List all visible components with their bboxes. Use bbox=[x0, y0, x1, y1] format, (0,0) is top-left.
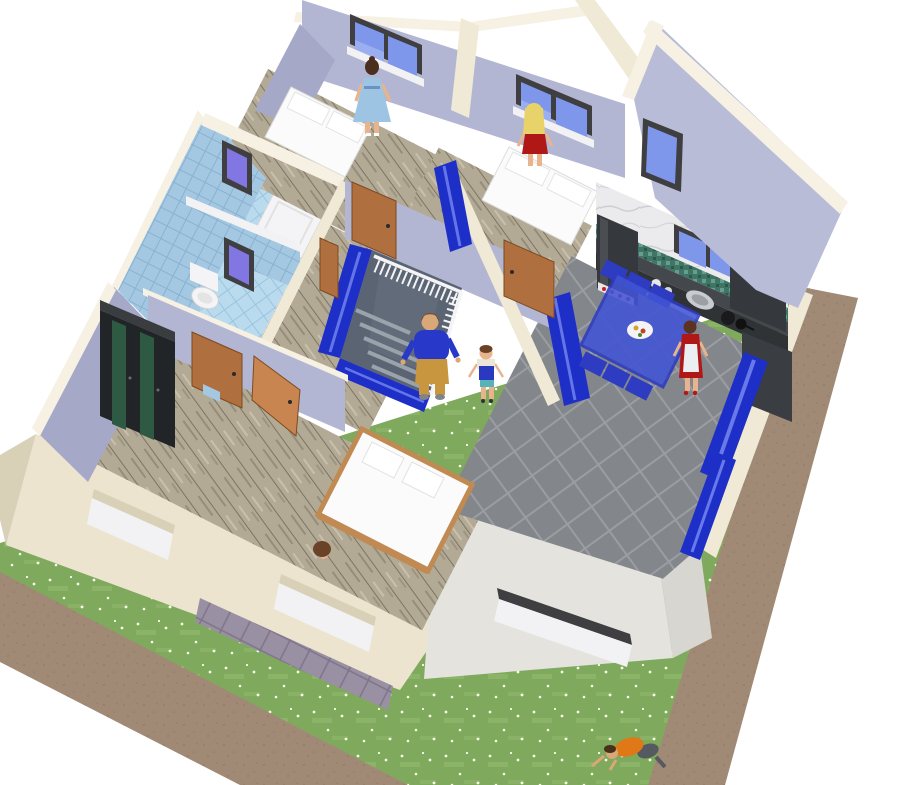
3d-view-stage bbox=[0, 0, 914, 785]
3d-view-canvas[interactable] bbox=[0, 0, 914, 785]
door-bathroom bbox=[320, 238, 338, 298]
